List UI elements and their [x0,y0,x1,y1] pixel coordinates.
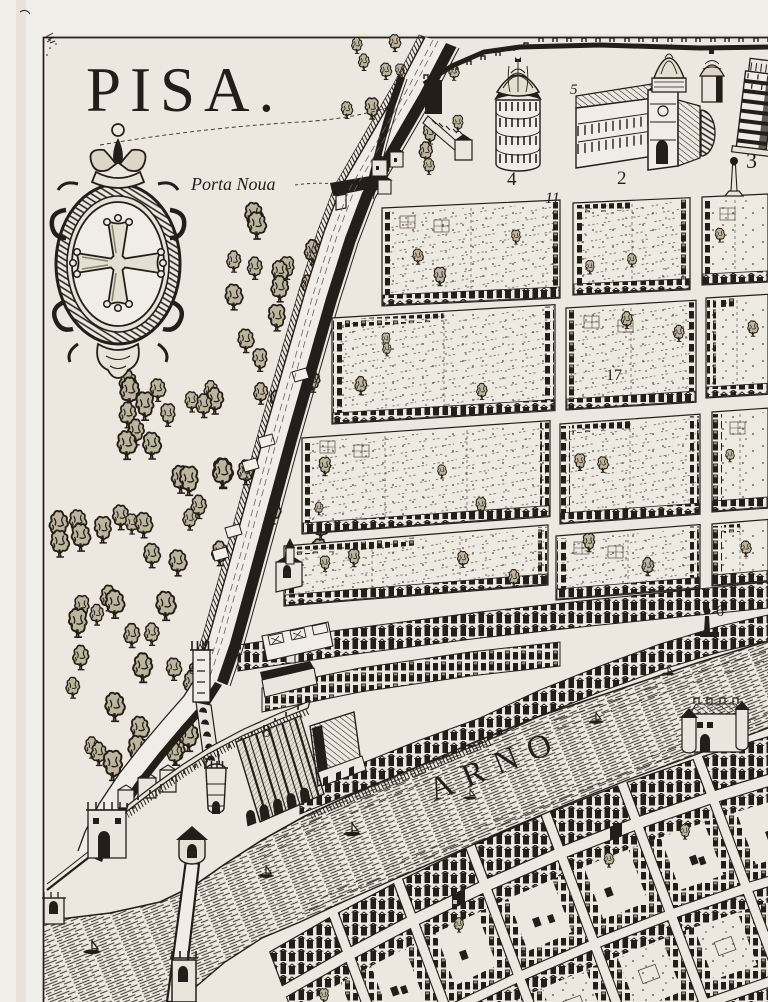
svg-text:5: 5 [570,82,578,98]
svg-text:3: 3 [746,148,757,173]
svg-text:PISA.: PISA. [86,55,283,125]
svg-text:6: 6 [716,603,724,620]
svg-text:4: 4 [507,169,517,190]
svg-text:8: 8 [262,721,271,741]
svg-text:17: 17 [606,367,622,384]
svg-text:2: 2 [617,168,627,189]
svg-text:Porta Noua: Porta Noua [190,174,276,194]
svg-text:11: 11 [545,190,560,207]
